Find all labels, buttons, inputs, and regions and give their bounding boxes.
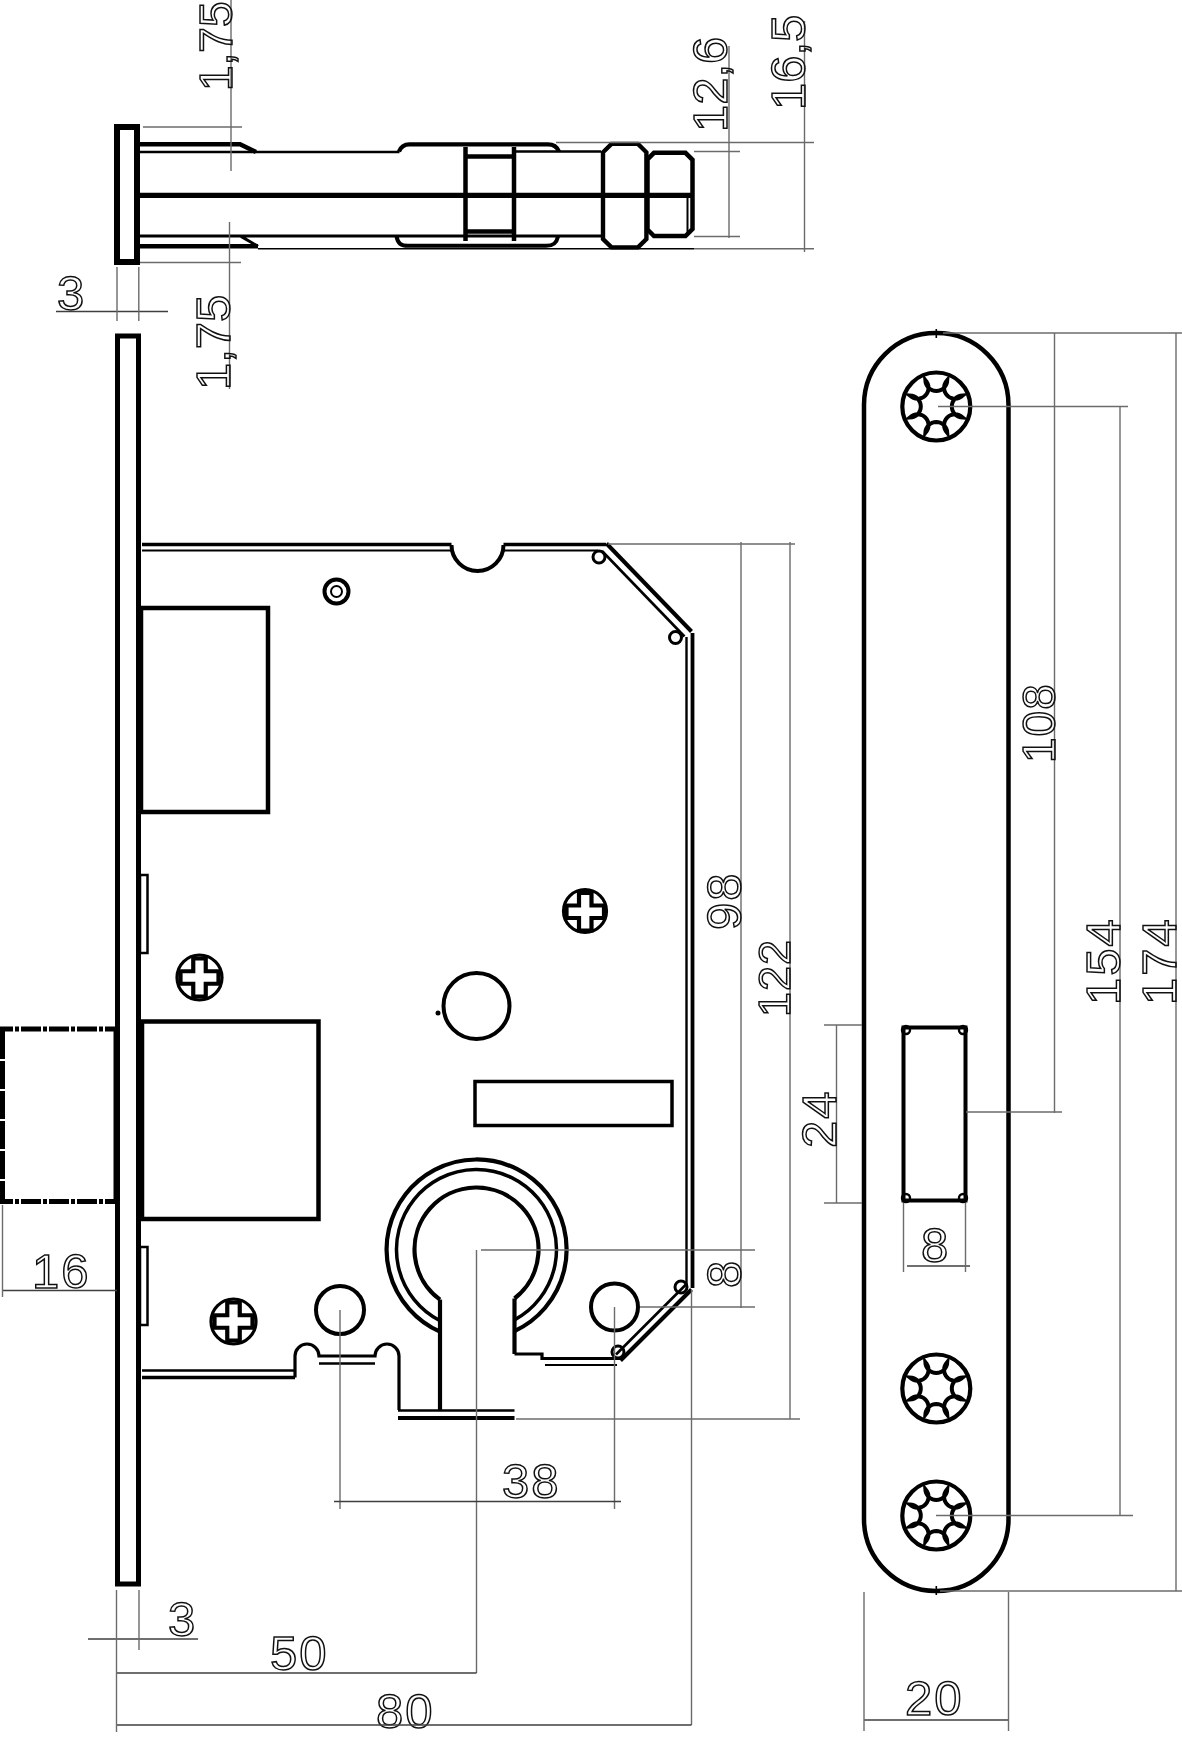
svg-text:98: 98 xyxy=(697,871,751,930)
svg-text:174: 174 xyxy=(1132,917,1182,1005)
svg-text:50: 50 xyxy=(270,1626,329,1680)
svg-text:24: 24 xyxy=(792,1089,846,1148)
svg-text:38: 38 xyxy=(502,1454,561,1508)
svg-text:16,5: 16,5 xyxy=(761,15,815,110)
svg-text:108: 108 xyxy=(1013,683,1065,763)
svg-text:80: 80 xyxy=(376,1684,435,1738)
svg-text:1,75: 1,75 xyxy=(186,295,240,390)
svg-text:8: 8 xyxy=(697,1259,751,1288)
svg-text:122: 122 xyxy=(749,939,800,1017)
svg-text:1,75: 1,75 xyxy=(190,1,242,91)
svg-text:8: 8 xyxy=(921,1218,950,1272)
svg-text:20: 20 xyxy=(905,1671,964,1725)
svg-text:12,6: 12,6 xyxy=(683,37,737,132)
svg-text:154: 154 xyxy=(1076,917,1130,1005)
svg-text:3: 3 xyxy=(168,1592,197,1646)
